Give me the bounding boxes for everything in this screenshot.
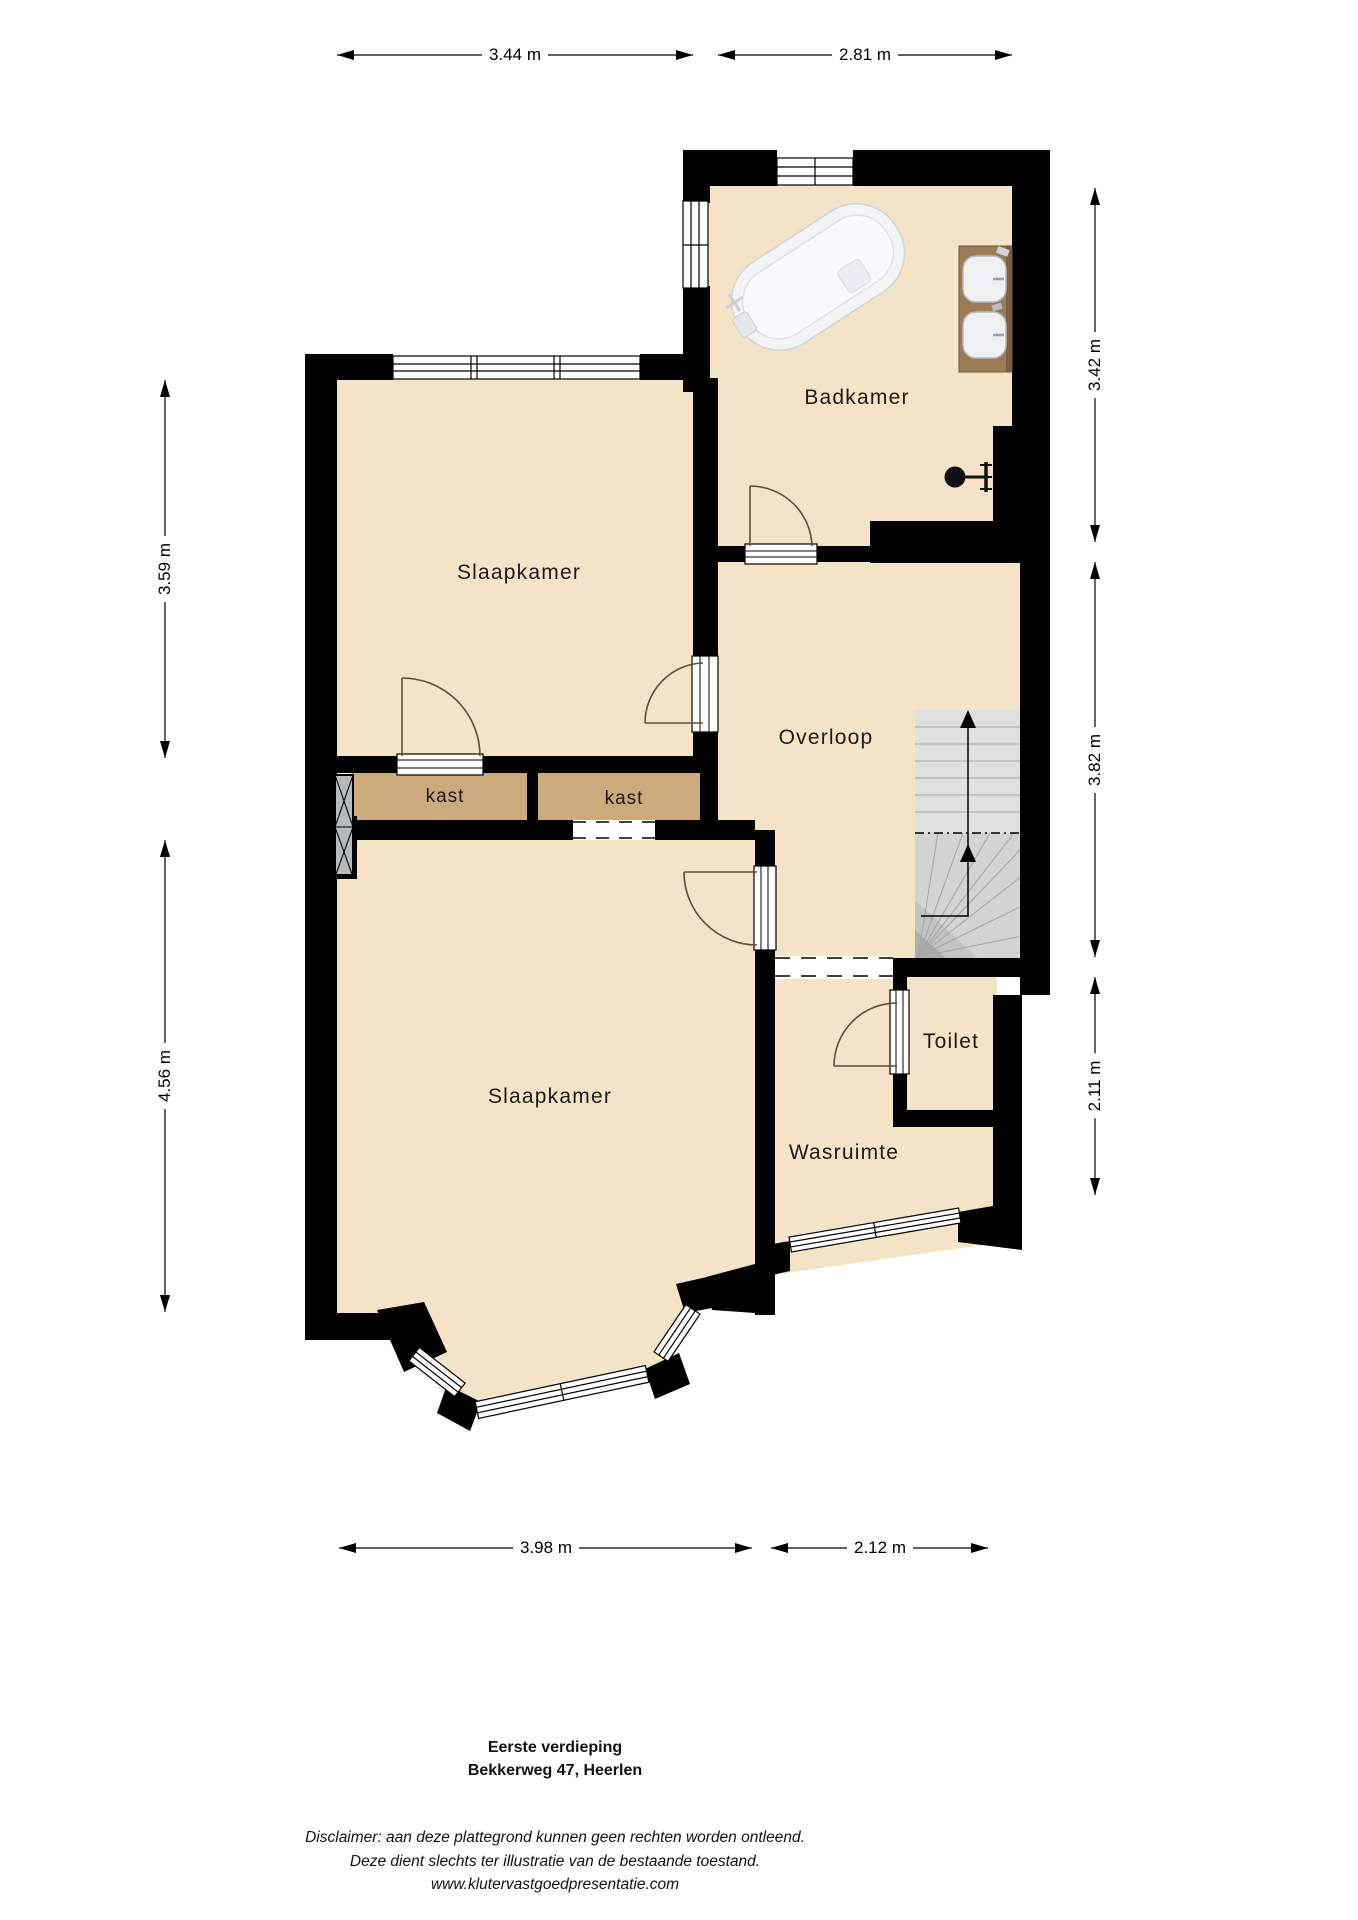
- vanity-sinks-icon: [959, 246, 1012, 372]
- disclaimer-line-2: Deze dient slechts ter illustratie van d…: [305, 1850, 805, 1874]
- label-overloop: Overloop: [779, 726, 874, 750]
- label-kast-rechts: kast: [605, 788, 644, 810]
- dim-label-left-2: 4.56 m: [155, 1043, 175, 1109]
- floor-plan-drawing: [0, 0, 1358, 1920]
- passage-kast-slaapkamer: [573, 820, 655, 840]
- dim-label-bottom-1: 3.98 m: [513, 1538, 579, 1558]
- label-badkamer: Badkamer: [804, 386, 909, 410]
- dim-label-top-1: 3.44 m: [482, 45, 548, 65]
- disclaimer-line-3: www.klutervastgoedpresentatie.com: [305, 1873, 805, 1897]
- disclaimer-line-1: Disclaimer: aan deze plattegrond kunnen …: [305, 1826, 805, 1850]
- dim-label-top-2: 2.81 m: [832, 45, 898, 65]
- address: Bekkerweg 47, Heerlen: [305, 1759, 805, 1782]
- footer-title: Eerste verdieping Bekkerweg 47, Heerlen: [305, 1736, 805, 1782]
- dim-label-bottom-2: 2.12 m: [847, 1538, 913, 1558]
- dim-label-left-1: 3.59 m: [155, 536, 175, 602]
- label-slaapkamer-beneden: Slaapkamer: [488, 1085, 612, 1109]
- floor-title: Eerste verdieping: [305, 1736, 805, 1759]
- footer-disclaimer: Disclaimer: aan deze plattegrond kunnen …: [305, 1826, 805, 1897]
- floor-plan-page: Badkamer Slaapkamer Overloop kast kast S…: [0, 0, 1358, 1920]
- label-toilet: Toilet: [923, 1030, 979, 1054]
- label-kast-links: kast: [426, 786, 465, 808]
- dim-label-right-2: 3.82 m: [1085, 727, 1105, 793]
- window-badkamer-left: [683, 201, 708, 288]
- label-slaapkamer-boven: Slaapkamer: [457, 561, 581, 585]
- label-wasruimte: Wasruimte: [789, 1141, 899, 1165]
- passage-overloop-wasruimte: [775, 956, 893, 979]
- dim-label-right-3: 2.11 m: [1085, 1054, 1105, 1119]
- window-badkamer-top: [777, 158, 853, 185]
- window-slaapkamer-boven: [393, 356, 640, 379]
- footer: Eerste verdieping Bekkerweg 47, Heerlen …: [305, 1736, 805, 1897]
- shaft-icon: [335, 775, 353, 877]
- dim-label-right-1: 3.42 m: [1085, 332, 1105, 398]
- staircase: [915, 710, 1022, 960]
